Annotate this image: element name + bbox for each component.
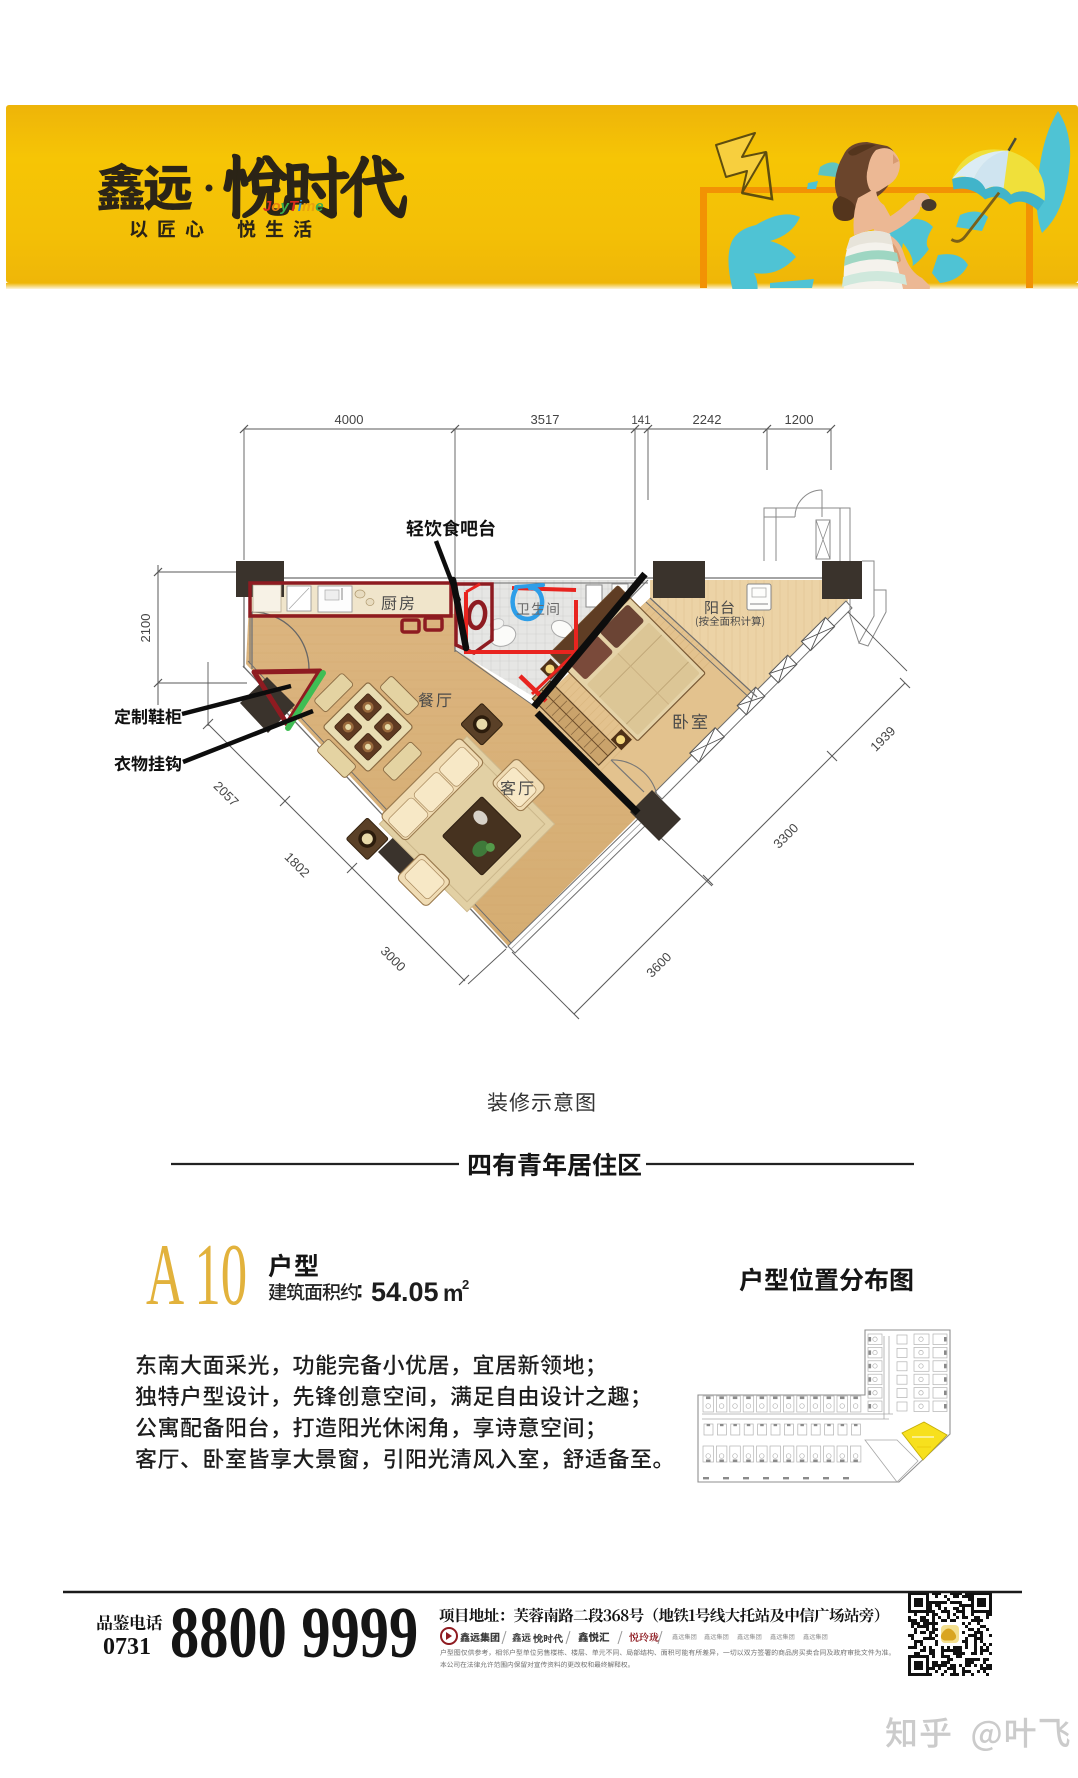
svg-text:4000: 4000 xyxy=(335,412,364,427)
svg-text:141: 141 xyxy=(631,415,650,427)
svg-text:3000: 3000 xyxy=(378,943,409,974)
svg-text:3517: 3517 xyxy=(531,412,560,427)
svg-text:2242: 2242 xyxy=(693,412,722,427)
svg-text:JoyTime: JoyTime xyxy=(263,198,324,215)
svg-text:1200: 1200 xyxy=(785,412,814,427)
svg-text:1939: 1939 xyxy=(867,723,898,754)
svg-text:0731: 0731 xyxy=(103,1634,151,1660)
svg-text:54.05: 54.05 xyxy=(371,1277,439,1307)
svg-text:1802: 1802 xyxy=(282,849,313,880)
svg-text:2: 2 xyxy=(462,1277,469,1292)
svg-text:3300: 3300 xyxy=(770,820,801,851)
svg-text:2057: 2057 xyxy=(211,778,242,809)
svg-text:2100: 2100 xyxy=(138,614,153,643)
svg-text:8800 9999: 8800 9999 xyxy=(170,1593,418,1674)
svg-text:m: m xyxy=(443,1280,463,1306)
svg-text:A 10: A 10 xyxy=(146,1225,247,1323)
svg-text:3600: 3600 xyxy=(643,949,674,980)
